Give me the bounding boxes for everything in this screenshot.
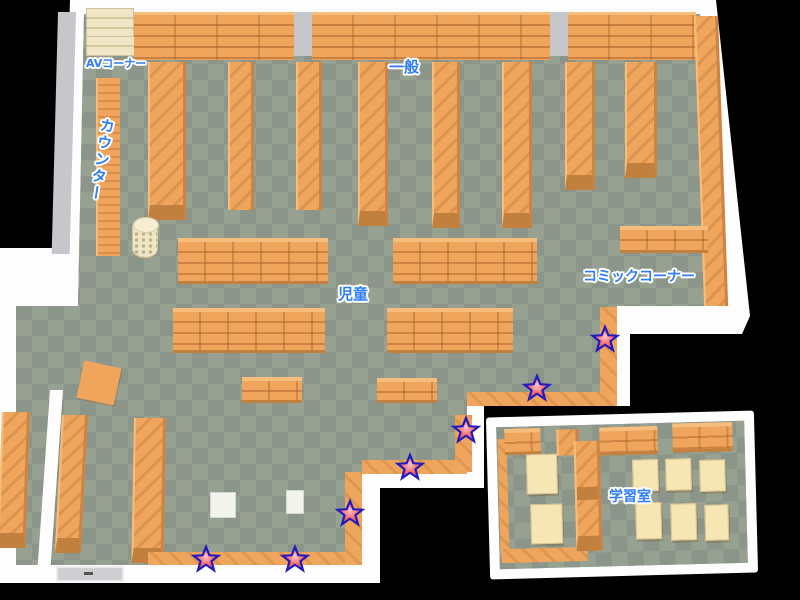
bookshelf-row xyxy=(296,62,322,210)
library-floor-map: AVコーナー カウンター 一般 児童 コミックコーナー 学習室 xyxy=(0,0,800,600)
study-table xyxy=(670,503,697,541)
floor-mat xyxy=(76,360,121,405)
bookshelf-row xyxy=(565,62,595,190)
children-shelf xyxy=(178,238,328,284)
label-study-room: 学習室 xyxy=(609,486,651,506)
study-table xyxy=(635,502,662,540)
study-table xyxy=(704,504,729,541)
label-av-corner: AVコーナー xyxy=(86,55,146,71)
wall-edge-shelf xyxy=(455,415,472,472)
wall-pillar xyxy=(550,12,568,56)
bookshelf-row xyxy=(131,418,166,563)
shelf-gap xyxy=(577,487,598,501)
bookshelf-row xyxy=(502,62,532,228)
wall-bookshelf xyxy=(134,12,294,60)
wall-edge-shelf xyxy=(362,460,467,474)
reading-seat xyxy=(210,492,236,518)
children-shelf xyxy=(387,308,513,353)
children-shelf xyxy=(173,308,325,353)
study-table xyxy=(699,459,726,492)
bookshelf-row xyxy=(432,62,460,228)
reading-seat xyxy=(286,490,304,514)
wall-bookshelf xyxy=(568,12,696,60)
study-table xyxy=(526,454,558,495)
wall-edge-shelf xyxy=(600,307,617,394)
study-table xyxy=(530,504,563,545)
label-children: 児童 xyxy=(338,283,368,304)
label-general: 一般 xyxy=(389,56,419,77)
bookshelf-row xyxy=(228,62,254,210)
label-comic-corner: コミックコーナー xyxy=(583,266,695,286)
study-table xyxy=(665,458,692,491)
bookshelf-row xyxy=(358,62,388,226)
study-shelf xyxy=(599,426,658,456)
children-low-shelf xyxy=(377,378,437,403)
wall-pillar xyxy=(294,12,312,56)
study-shelf xyxy=(672,422,733,453)
bookshelf-row xyxy=(148,62,186,220)
children-low-shelf xyxy=(242,377,302,403)
bookshelf-row xyxy=(0,412,30,548)
wall-bookshelf xyxy=(312,12,550,60)
comic-corner-shelf xyxy=(620,226,708,253)
study-shelf xyxy=(504,428,541,455)
wall-edge-shelf xyxy=(501,547,587,563)
study-divider-shelf xyxy=(574,441,603,552)
av-corner-shelf xyxy=(86,8,134,38)
door-handle xyxy=(84,572,93,575)
wall-edge-shelf xyxy=(345,472,362,565)
wall-edge-shelf xyxy=(148,552,345,565)
bookshelf-row xyxy=(625,62,657,178)
book-bin xyxy=(132,218,158,258)
children-shelf xyxy=(393,238,537,284)
wall-edge-shelf xyxy=(467,392,617,406)
